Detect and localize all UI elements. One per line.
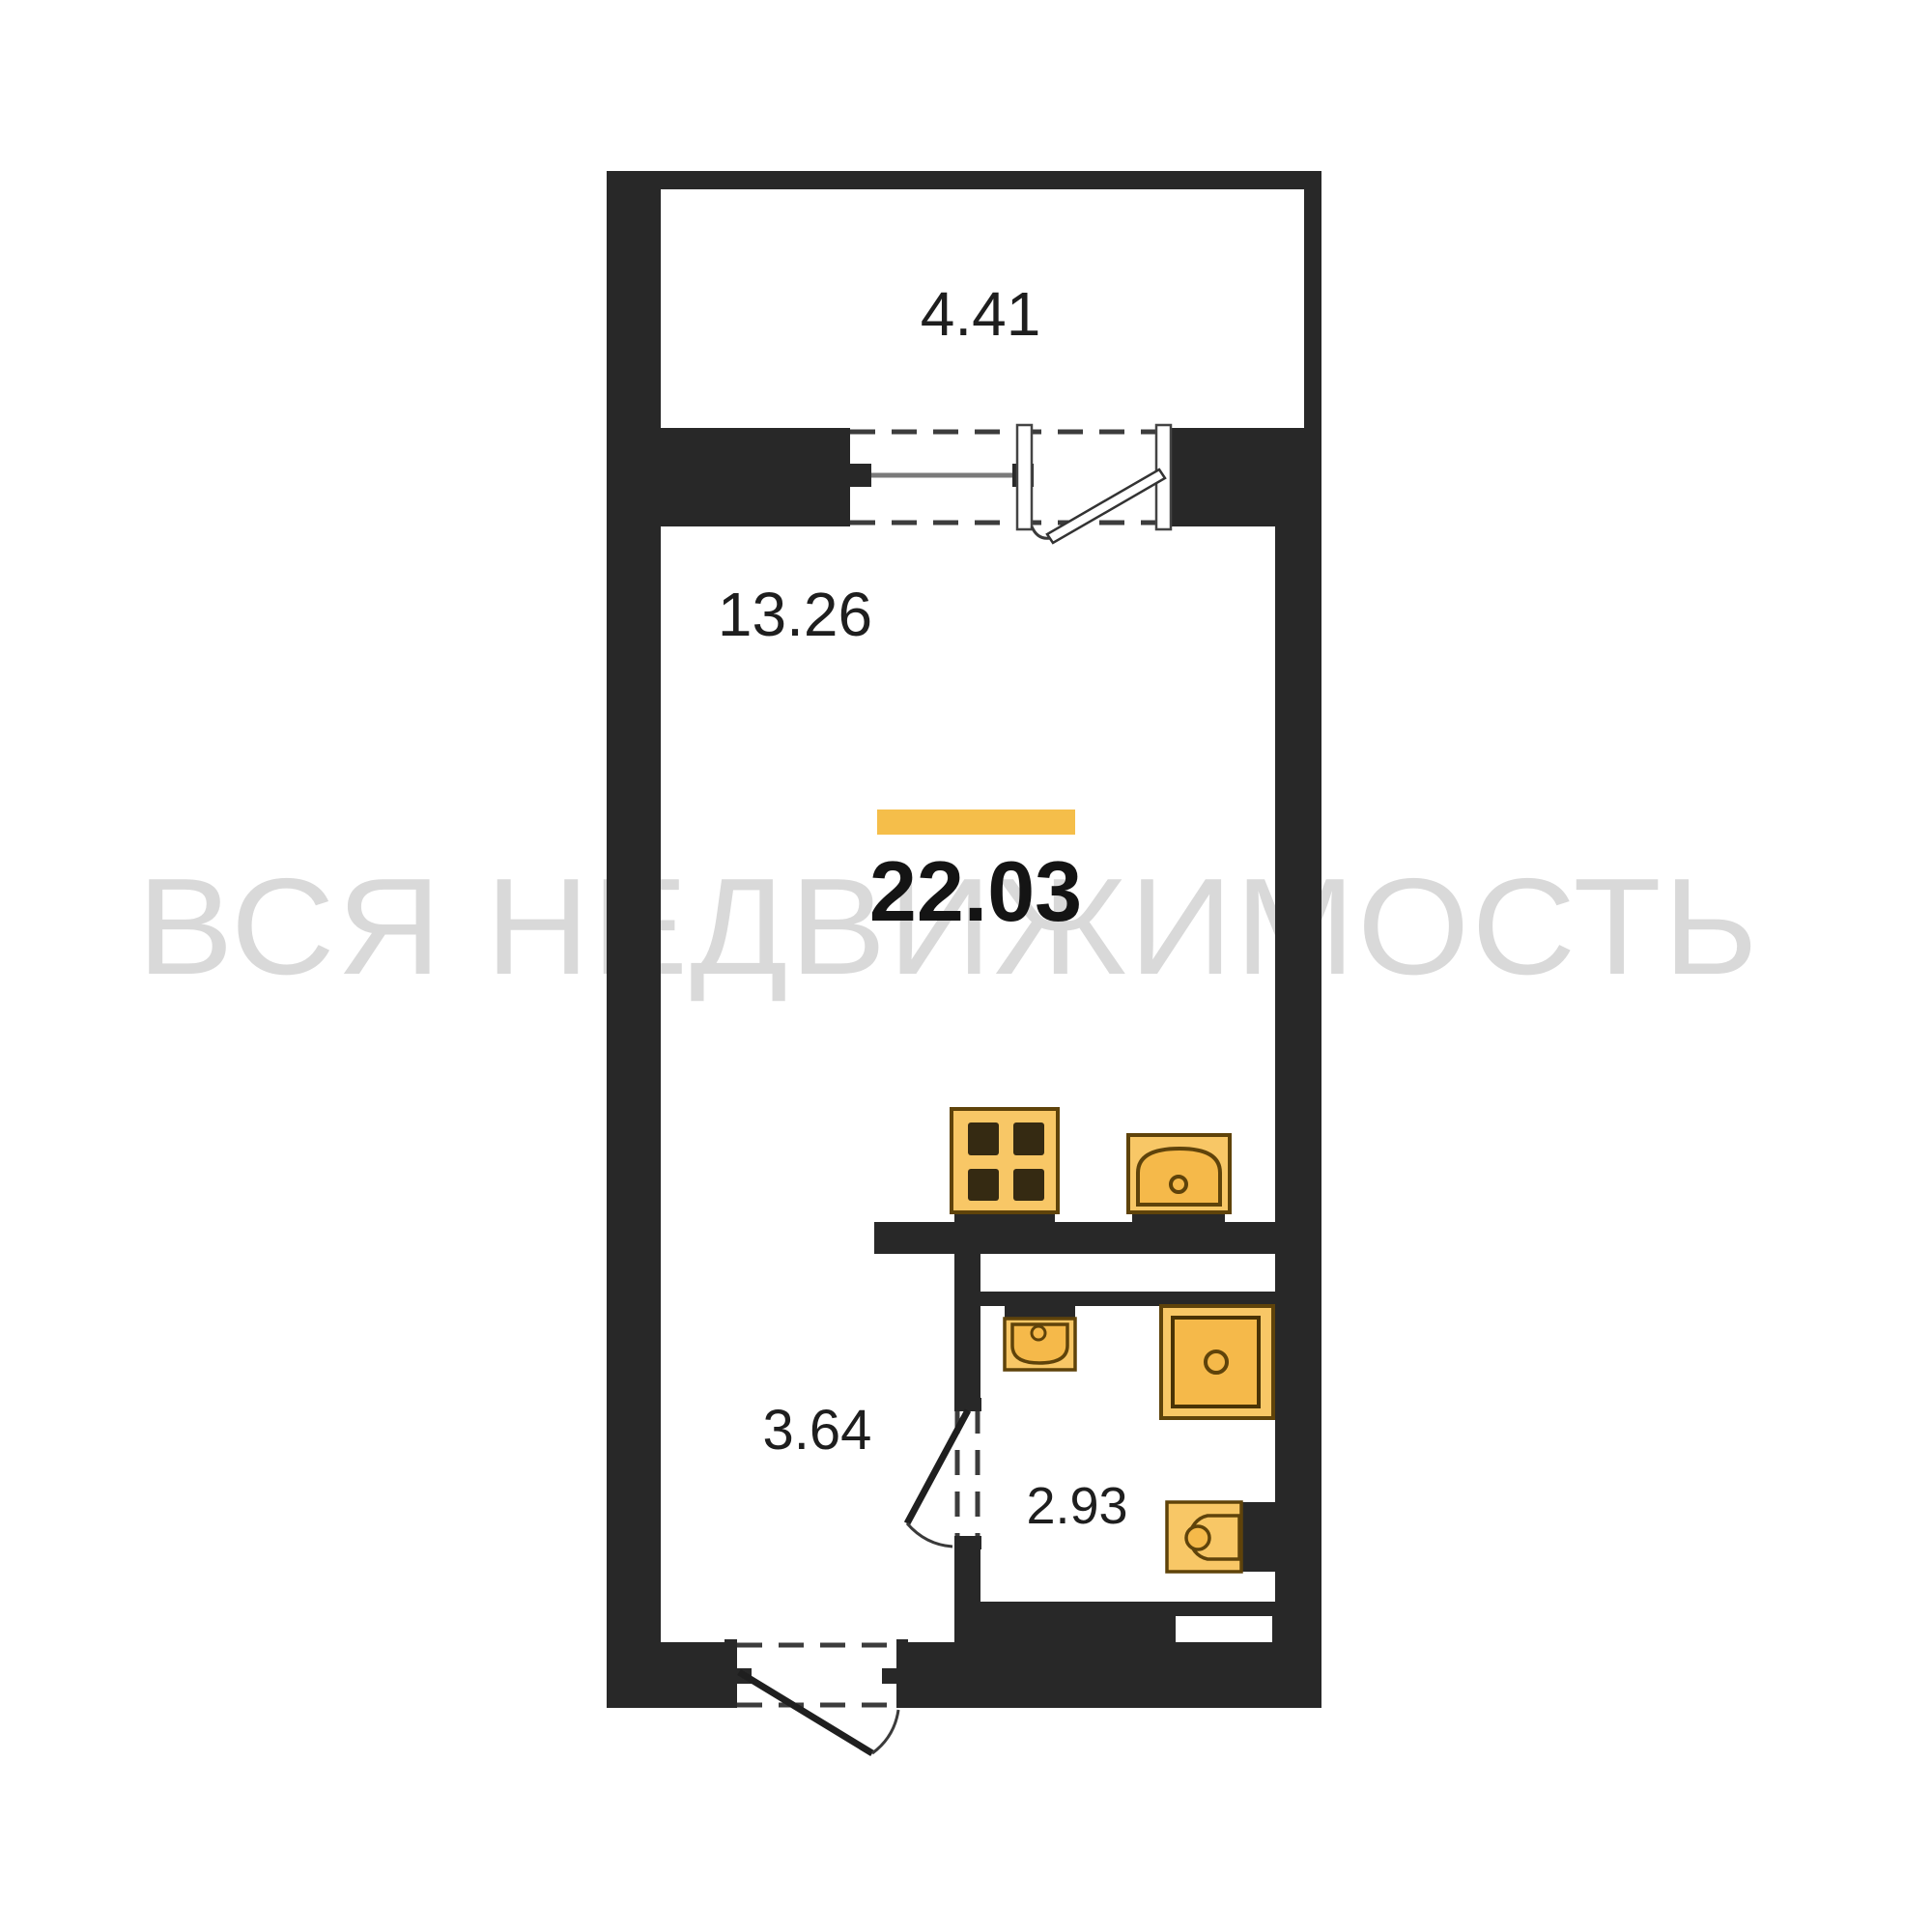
wall-balcony-right [1304,171,1321,428]
washbasin-icon [1005,1306,1075,1370]
entrance-door-leaf [739,1672,872,1753]
kitchen-sink-drain [1171,1177,1186,1192]
washbasin-drain [1032,1326,1045,1340]
stove-burner [1013,1122,1044,1155]
entrance-latch-block [882,1668,896,1684]
kitchen-sink-icon [1128,1135,1230,1223]
wall-top [607,171,1321,189]
wall-bathroom-north [980,1292,1275,1306]
hallway-area-label: 3.64 [763,1399,872,1462]
wall-bottom-left [607,1642,724,1708]
kitchen-counter [874,1222,1275,1254]
wall-balcony-band-left [607,428,850,526]
wall-bathroom-west-lower [954,1546,980,1642]
bathroom-door-swing-arc [907,1523,952,1547]
stove-burner [968,1122,999,1155]
shower-inner [1173,1318,1259,1406]
entrance-jamb-right [896,1639,908,1708]
washbasin-backing [1005,1306,1075,1319]
entrance-door [724,1639,908,1753]
entrance-door-swing-arc [872,1710,898,1753]
toilet-drain [1186,1526,1209,1549]
entrance-jamb-left [724,1639,737,1708]
bathroom-hinge-block [954,1398,981,1411]
balcony-door-post-left [1017,425,1032,529]
stove-burner [968,1169,999,1201]
total-area-highlight-bar [877,810,1075,835]
floorplan-svg: ВСЯ НЕДВИЖИМОСТЬ [0,0,1932,1932]
balcony-opening [845,425,1171,543]
bathroom-door [907,1398,981,1549]
balcony-door-leaf [1047,469,1165,543]
wall-left [607,171,661,1708]
vent-duct-slot [1176,1616,1272,1642]
stove-burner [1013,1169,1044,1201]
toilet-tank [1241,1502,1275,1572]
wall-bathroom-west-upper [954,1254,980,1408]
balcony-window-sill-left [845,464,871,487]
wall-right [1275,428,1321,1708]
floorplan-image: ВСЯ НЕДВИЖИМОСТЬ [0,0,1932,1932]
stove-icon [952,1109,1058,1223]
bathroom-latch-block [954,1536,981,1549]
balcony-area-label: 4.41 [921,279,1041,349]
total-area-label: 22.03 [869,843,1082,939]
living-room-area-label: 13.26 [718,580,872,649]
toilet-icon [1167,1502,1275,1572]
wall-bottom-right [908,1642,1321,1708]
bathroom-area-label: 2.93 [1026,1477,1127,1535]
shower-icon [1161,1306,1273,1418]
